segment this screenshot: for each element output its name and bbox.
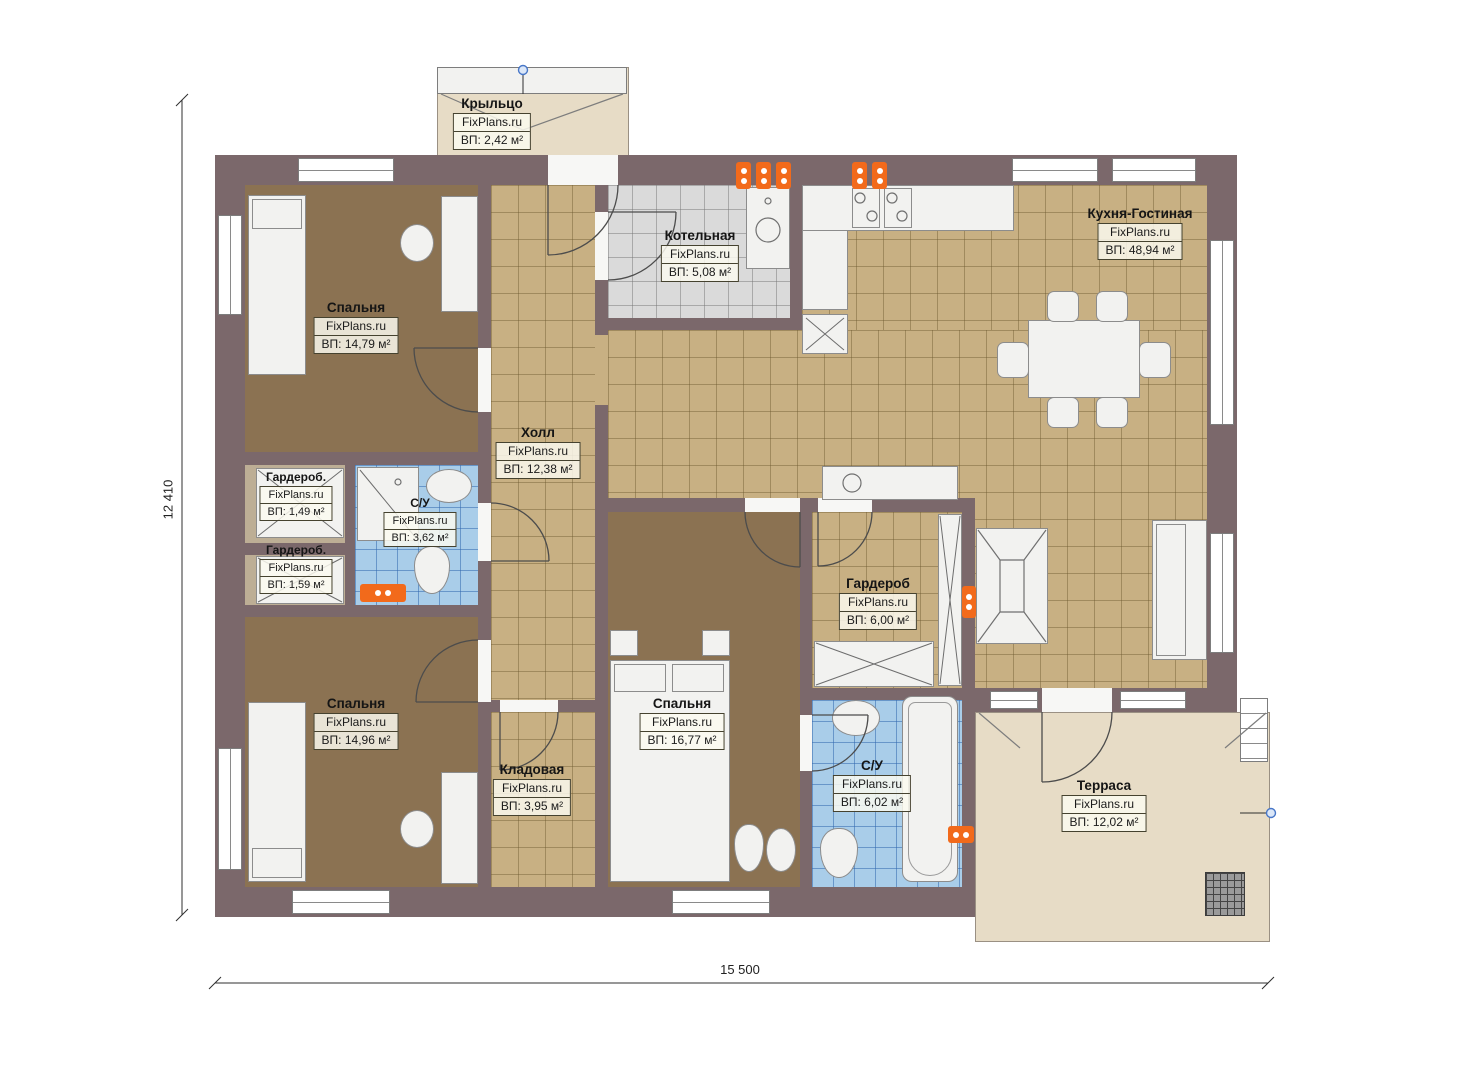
door-opening-bath-big: [800, 715, 812, 771]
watermark: FixPlans.ru: [260, 560, 331, 577]
wall-int-4: [245, 605, 478, 617]
water-heater: [802, 230, 848, 310]
pillow: [614, 664, 666, 692]
watermark: FixPlans.ru: [315, 714, 398, 732]
equipment-unit: [802, 314, 848, 354]
radiator-icon: [948, 826, 974, 843]
wall-bedroom-mid-right: [800, 512, 812, 887]
wall-boiler-right: [790, 185, 802, 330]
watermark: FixPlans.ru: [662, 246, 738, 264]
room-info-box: FixPlans.ru ВП: 5,08 м²: [661, 245, 739, 282]
room-name: Спальня: [640, 696, 725, 711]
room-info-box: FixPlans.ru ВП: 3,95 м²: [493, 779, 571, 816]
radiator-icon: [776, 162, 791, 189]
room-info-box: FixPlans.ru ВП: 6,00 м²: [839, 593, 917, 630]
dimension-tick: [209, 977, 1274, 989]
room-name: Кладовая: [493, 762, 571, 777]
chair: [1096, 397, 1128, 428]
floor-plan-canvas: Крыльцо FixPlans.ru ВП: 2,42 м² Спальня …: [0, 0, 1474, 1080]
room-label-terrace: Терраса FixPlans.ru ВП: 12,02 м²: [1062, 778, 1147, 832]
room-label-bath-small: С/У FixPlans.ru ВП: 3,62 м²: [383, 496, 456, 547]
room-label-wardrobe-2: Гардероб. FixPlans.ru ВП: 1,59 м²: [259, 543, 332, 594]
dimension-label-bottom: 15 500: [700, 962, 780, 977]
terrace-side-steps: [1240, 698, 1268, 762]
stove: [884, 188, 912, 228]
window: [218, 215, 242, 315]
room-name: Спальня: [314, 696, 399, 711]
door-opening-boiler: [595, 212, 608, 280]
chair: [1047, 397, 1079, 428]
pillow: [252, 199, 302, 229]
watermark: FixPlans.ru: [1099, 224, 1182, 242]
window: [672, 890, 770, 914]
watermark: FixPlans.ru: [641, 714, 724, 732]
window: [218, 748, 242, 870]
window: [1012, 158, 1098, 182]
nightstand: [702, 630, 730, 656]
room-label-bedroom-mid: Спальня FixPlans.ru ВП: 16,77 м²: [640, 696, 725, 750]
room-name: Терраса: [1062, 778, 1147, 793]
room-area: ВП: 14,79 м²: [315, 336, 398, 353]
door-opening-bedroom-tl: [478, 348, 491, 412]
room-label-wardrobe-3: Гардероб FixPlans.ru ВП: 6,00 м²: [839, 576, 917, 630]
watermark: FixPlans.ru: [494, 780, 570, 798]
watermark: FixPlans.ru: [260, 487, 331, 504]
closet: [938, 514, 962, 686]
door-opening-bath-small: [478, 503, 491, 561]
passage-hall-living: [595, 335, 608, 405]
door-opening-bedroom-mid: [745, 498, 800, 512]
room-label-porch: Крыльцо FixPlans.ru ВП: 2,42 м²: [453, 96, 531, 150]
window: [1210, 533, 1234, 653]
room-label-wardrobe-1: Гардероб. FixPlans.ru ВП: 1,49 м²: [259, 470, 332, 521]
radiator-icon: [872, 162, 887, 189]
room-info-box: FixPlans.ru ВП: 12,38 м²: [496, 442, 581, 479]
pillow: [252, 848, 302, 878]
nightstand: [610, 630, 638, 656]
watermark: FixPlans.ru: [454, 114, 530, 132]
chair: [997, 342, 1029, 378]
chair: [400, 224, 434, 262]
wall-hall-right-lower: [595, 512, 608, 887]
room-name: С/У: [383, 496, 456, 510]
radiator-icon: [852, 162, 867, 189]
watermark: FixPlans.ru: [497, 443, 580, 461]
door-opening-terrace: [1042, 688, 1112, 712]
door-opening-wardrobe3: [818, 498, 872, 512]
room-label-boiler: Котельная FixPlans.ru ВП: 5,08 м²: [661, 228, 739, 282]
room-area: ВП: 1,49 м²: [260, 504, 331, 520]
porch-step: [437, 67, 627, 94]
radiator-icon: [736, 162, 751, 189]
window: [990, 691, 1038, 709]
room-area: ВП: 5,08 м²: [662, 264, 738, 281]
watermark: FixPlans.ru: [834, 776, 910, 794]
room-name: С/У: [833, 758, 911, 773]
door-opening-storage: [500, 700, 558, 712]
room-area: ВП: 48,94 м²: [1099, 242, 1182, 259]
window: [298, 158, 394, 182]
room-label-bath-big: С/У FixPlans.ru ВП: 6,02 м²: [833, 758, 911, 812]
window: [292, 890, 390, 914]
room-info-box: FixPlans.ru ВП: 48,94 м²: [1098, 223, 1183, 260]
bed: [610, 660, 730, 882]
room-area: ВП: 3,95 м²: [494, 798, 570, 815]
door-opening-entrance: [548, 155, 618, 185]
room-area: ВП: 2,42 м²: [454, 132, 530, 149]
watermark: FixPlans.ru: [840, 594, 916, 612]
radiator-icon: [756, 162, 771, 189]
watermark: FixPlans.ru: [384, 513, 455, 530]
room-info-box: FixPlans.ru ВП: 3,62 м²: [383, 512, 456, 547]
room-area: ВП: 16,77 м²: [641, 732, 724, 749]
room-info-box: FixPlans.ru ВП: 14,79 м²: [314, 317, 399, 354]
room-name: Гардероб: [839, 576, 917, 591]
stool: [766, 828, 796, 872]
pillow: [672, 664, 724, 692]
chair: [400, 810, 434, 848]
desk: [441, 772, 478, 884]
wall-int-1: [245, 452, 478, 465]
room-name: Крыльцо: [453, 96, 531, 111]
closet: [814, 641, 934, 687]
room-label-kitchen-living: Кухня-Гостиная FixPlans.ru ВП: 48,94 м²: [1088, 206, 1193, 260]
room-info-box: FixPlans.ru ВП: 2,42 м²: [453, 113, 531, 150]
room-label-hall: Холл FixPlans.ru ВП: 12,38 м²: [496, 425, 581, 479]
room-info-box: FixPlans.ru ВП: 1,59 м²: [259, 559, 332, 594]
room-name: Кухня-Гостиная: [1088, 206, 1193, 221]
room-area: ВП: 6,02 м²: [834, 794, 910, 811]
watermark: FixPlans.ru: [315, 318, 398, 336]
room-label-storage: Кладовая FixPlans.ru ВП: 3,95 м²: [493, 762, 571, 816]
terrace-grate: [1205, 872, 1245, 916]
radiator-icon: [962, 586, 976, 618]
radiator-icon: [360, 584, 406, 602]
window: [1112, 158, 1196, 182]
room-info-box: FixPlans.ru ВП: 12,02 м²: [1062, 795, 1147, 832]
wall-int-3: [345, 465, 355, 617]
room-area: ВП: 14,96 м²: [315, 732, 398, 749]
washing-machine: [746, 187, 790, 269]
window: [1210, 240, 1234, 425]
room-info-box: FixPlans.ru ВП: 1,49 м²: [259, 486, 332, 521]
sofa-seat: [1156, 524, 1186, 656]
room-area: ВП: 3,62 м²: [384, 530, 455, 546]
wall-boiler-bottom: [608, 318, 790, 330]
watermark: FixPlans.ru: [1063, 796, 1146, 814]
room-name: Котельная: [661, 228, 739, 243]
room-area: ВП: 12,02 м²: [1063, 814, 1146, 831]
room-name: Спальня: [314, 300, 399, 315]
room-area: ВП: 12,38 м²: [497, 461, 580, 478]
dimension-tick: [176, 94, 188, 921]
door-opening-bedroom-bl: [478, 640, 491, 702]
room-name: Гардероб.: [259, 470, 332, 484]
room-info-box: FixPlans.ru ВП: 6,02 м²: [833, 775, 911, 812]
room-label-bedroom-tl: Спальня FixPlans.ru ВП: 14,79 м²: [314, 300, 399, 354]
room-label-bedroom-bl: Спальня FixPlans.ru ВП: 14,96 м²: [314, 696, 399, 750]
room-area: ВП: 1,59 м²: [260, 577, 331, 593]
chair: [1047, 291, 1079, 322]
room-info-box: FixPlans.ru ВП: 14,96 м²: [314, 713, 399, 750]
stove: [852, 188, 880, 228]
room-name: Гардероб.: [259, 543, 332, 557]
dining-table: [1028, 320, 1140, 398]
sink: [832, 700, 880, 736]
chair: [1096, 291, 1128, 322]
window: [1120, 691, 1186, 709]
wall-block-right: [962, 512, 975, 917]
bathtub-basin: [908, 702, 952, 876]
desk: [441, 196, 478, 312]
room-info-box: FixPlans.ru ВП: 16,77 м²: [640, 713, 725, 750]
chair: [1139, 342, 1171, 378]
room-area: ВП: 6,00 м²: [840, 612, 916, 629]
kitchen-island: [822, 466, 958, 500]
dimension-label-left: 12 410: [160, 480, 175, 520]
fireplace: [976, 528, 1048, 644]
room-name: Холл: [496, 425, 581, 440]
